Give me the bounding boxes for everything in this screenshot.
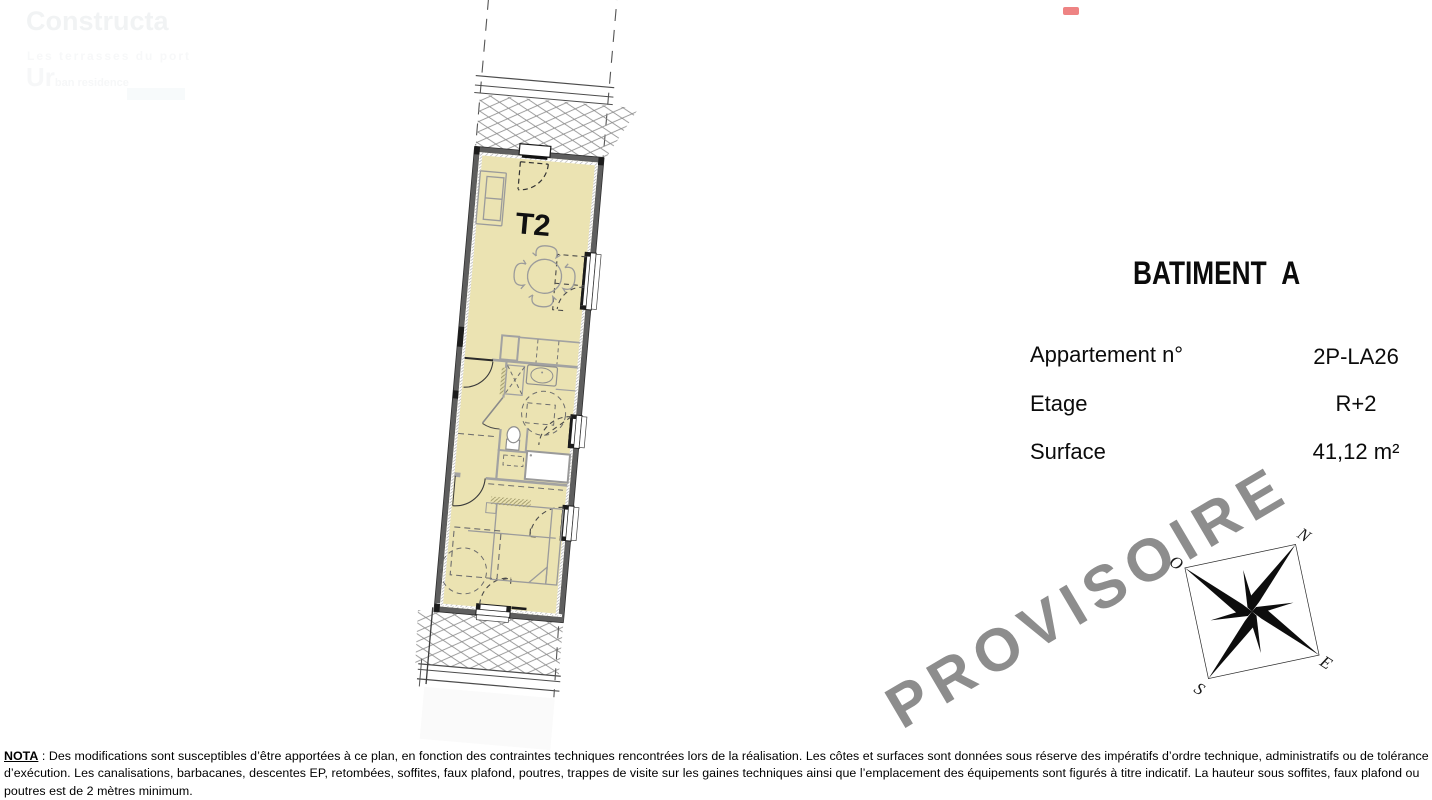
- svg-text:PROVISOIRE: PROVISOIRE: [875, 452, 1301, 741]
- svg-text:S: S: [1191, 679, 1209, 700]
- svg-text:N: N: [1293, 523, 1315, 547]
- svg-text:T2: T2: [514, 207, 552, 243]
